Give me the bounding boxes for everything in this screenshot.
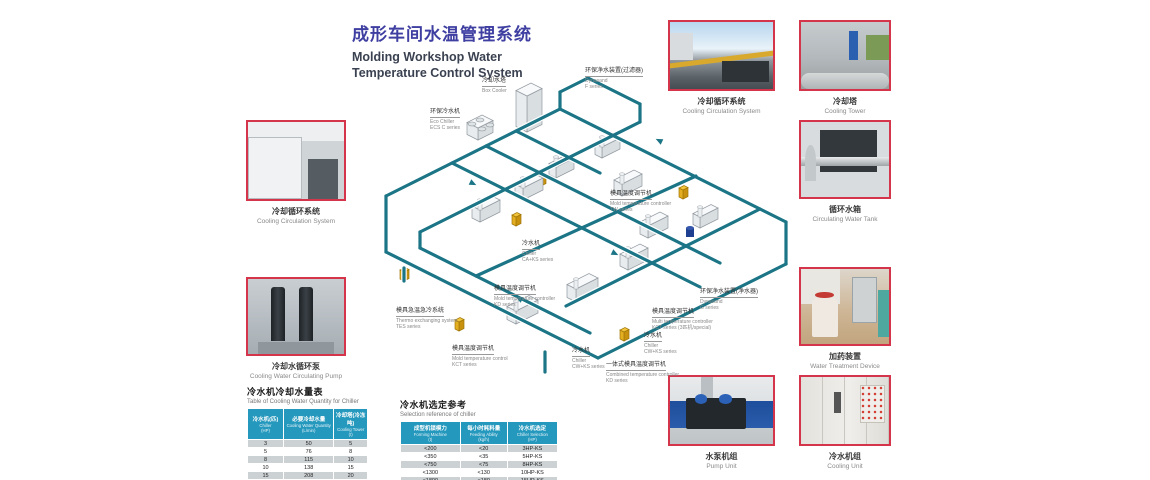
cooling-water-table-block: 冷水机冷却水量表 Table of Cooling Water Quantity… bbox=[247, 385, 368, 480]
table-row: 1520820 bbox=[248, 472, 368, 480]
diagram-label-kct-series: 模具温度调节机 Mold temperature control KCT ser… bbox=[452, 336, 508, 369]
table-cell: 15 bbox=[334, 464, 368, 472]
caption-en: Cooling Circulation System bbox=[246, 218, 346, 225]
caption-zh: 加药装置 bbox=[799, 351, 891, 362]
table-header-row: 冷水机(匹) Chiller (HP) 必要冷却水量 Cooling Water… bbox=[248, 409, 368, 440]
table-cell: 10 bbox=[248, 464, 284, 472]
photo-cooling-unit bbox=[799, 375, 891, 446]
chiller-selection-table: 成型机锁模力 Forming Machine (t) 每小时耗料量 Feedin… bbox=[400, 421, 558, 480]
header-chiller: 冷水机(匹) Chiller (HP) bbox=[248, 409, 284, 440]
diagram-label-ca-ks: 冷水机 Chiller CA+KS series bbox=[522, 231, 553, 264]
caption-en: Cooling Unit bbox=[799, 463, 891, 470]
table-cell: <200 bbox=[401, 445, 461, 453]
diagram-label-kd-series-left: 模具温度调节机 Mold temperature controller KD s… bbox=[494, 276, 555, 309]
table-row: 811510 bbox=[248, 456, 368, 464]
photo-tower-box bbox=[248, 137, 302, 199]
photo-teal-pipe bbox=[878, 290, 889, 337]
caption-pump-unit: 水泵机组 Pump Unit bbox=[668, 451, 775, 470]
table-row: <1300<13010HP-KS bbox=[401, 469, 558, 477]
header-clamping-force: 成型机锁模力 Forming Machine (t) bbox=[401, 422, 461, 445]
caption-circulating-pump: 冷却水循环泵 Cooling Water Circulating Pump bbox=[246, 361, 346, 380]
header-cooling-tower: 冷却塔(冷冻吨) Cooling Tower (t) bbox=[334, 409, 368, 440]
caption-cooling-tower: 冷却塔 Cooling Tower bbox=[799, 96, 891, 115]
photo-pump-cluster bbox=[686, 398, 746, 429]
chiller-selection-table-block: 冷水机选定参考 Selection reference of chiller 成… bbox=[400, 398, 558, 480]
caption-cooling-circulation-left: 冷却循环系统 Cooling Circulation System bbox=[246, 206, 346, 225]
caption-zh: 冷却水循环泵 bbox=[246, 361, 346, 372]
diagram-label-tes-series: 模具急温急冷系统 Thermo exchanging system TES se… bbox=[396, 298, 457, 331]
table-title-en: Table of Cooling Water Quantity for Chil… bbox=[247, 399, 368, 405]
table-cell: 15 bbox=[248, 472, 284, 480]
header-water-quantity: 必要冷却水量 Cooling Water Quantity (L/min) bbox=[284, 409, 334, 440]
table-cell: 208 bbox=[284, 472, 334, 480]
table-header-row: 成型机锁模力 Forming Machine (t) 每小时耗料量 Feedin… bbox=[401, 422, 558, 445]
diagram-label-box-cooler: 冷却水塔 Box Cooler bbox=[482, 68, 507, 94]
diagram-label-cw-ks-center: 冷水机 Chiller CW+KS series bbox=[572, 338, 605, 371]
table-row: 3505 bbox=[248, 440, 368, 448]
table-cell: <35 bbox=[460, 453, 507, 461]
table-cell: 5 bbox=[248, 448, 284, 456]
photo-pump-unit bbox=[668, 375, 775, 446]
table-row: <1800<18015HP-KS bbox=[401, 477, 558, 480]
caption-zh: 循环水箱 bbox=[799, 204, 891, 215]
table-cell: 10HP-KS bbox=[507, 469, 557, 477]
cooling-water-table-body: 3505576881151010138151520820202762530417… bbox=[248, 440, 368, 480]
table-row: 5768 bbox=[248, 448, 368, 456]
photo-cooling-circulation-left bbox=[246, 120, 346, 201]
table-cell: 5HP-KS bbox=[507, 453, 557, 461]
diagram-label-cw-ks-right: 冷水机 Chiller CW+KS series bbox=[644, 323, 677, 356]
caption-en: Water Treatment Device bbox=[799, 363, 891, 370]
header-chiller-selection: 冷水机选定 Chiller Selection (HP) bbox=[507, 422, 557, 445]
table-cell: <1800 bbox=[401, 477, 461, 480]
header-feeding-ability: 每小时耗料量 Feeding Ability (kg/h) bbox=[460, 422, 507, 445]
caption-zh: 冷却循环系统 bbox=[246, 206, 346, 217]
table-cell: 8 bbox=[334, 448, 368, 456]
caption-zh: 冷却塔 bbox=[799, 96, 891, 107]
table-cell: 8HP-KS bbox=[507, 461, 557, 469]
caption-en: Pump Unit bbox=[668, 463, 775, 470]
photo-grass bbox=[866, 35, 889, 59]
table-cell: 138 bbox=[284, 464, 334, 472]
photo-blue-pump bbox=[849, 31, 858, 59]
table-row: <750<758HP-KS bbox=[401, 461, 558, 469]
table-cell: <75 bbox=[460, 461, 507, 469]
table-title-en: Selection reference of chiller bbox=[400, 412, 558, 418]
table-title-zh: 冷水机选定参考 bbox=[400, 398, 558, 411]
photo-cabinet-window bbox=[834, 392, 840, 413]
photo-dark-unit bbox=[308, 159, 339, 199]
photo-control-cabinet bbox=[852, 277, 877, 324]
diagram-label-eco-chiller: 环保冷水机 Eco Chiller ECS C series bbox=[430, 99, 460, 132]
diagram-label-tw-series: 模具温度调节机 Mold temperature controller TW s… bbox=[610, 181, 671, 214]
diagram-label-dynasand-f: 环保净水装置(过滤器) Dynasand F series bbox=[585, 58, 643, 91]
title-chinese: 成形车间水温管理系统 bbox=[352, 20, 582, 45]
photo-cooling-tower bbox=[799, 20, 891, 91]
caption-water-tank: 循环水箱 Circulating Water Tank bbox=[799, 204, 891, 223]
diagram-label-kd-combined: 一体式模具温度调节机 Combined temperature controll… bbox=[606, 352, 679, 385]
photo-large-pipe bbox=[801, 73, 889, 89]
photo-motor-cap-2 bbox=[719, 394, 731, 403]
table-cell: <180 bbox=[460, 477, 507, 480]
chiller-selection-table-body: <200<203HP-KS<350<355HP-KS<750<758HP-KS<… bbox=[401, 445, 558, 480]
photo-dosing-tank bbox=[812, 298, 838, 337]
caption-cooling-unit: 冷水机组 Cooling Unit bbox=[799, 451, 891, 470]
photo-water-tank bbox=[799, 120, 891, 199]
photo-led-panel bbox=[860, 385, 885, 423]
brochure-page: 成形车间水温管理系统 Molding Workshop Water Temper… bbox=[0, 0, 1150, 480]
caption-zh: 冷水机组 bbox=[799, 451, 891, 462]
cooling-water-table: 冷水机(匹) Chiller (HP) 必要冷却水量 Cooling Water… bbox=[247, 408, 368, 480]
photo-circulating-pump bbox=[246, 277, 346, 356]
table-cell: 50 bbox=[284, 440, 334, 448]
table-cell: 115 bbox=[284, 456, 334, 464]
photo-water-treatment bbox=[799, 267, 891, 346]
caption-en: Circulating Water Tank bbox=[799, 216, 891, 223]
table-row: 1013815 bbox=[248, 464, 368, 472]
photo-motor-cap-1 bbox=[695, 394, 707, 403]
table-cell: 76 bbox=[284, 448, 334, 456]
table-title-zh: 冷水机冷却水量表 bbox=[247, 385, 368, 398]
caption-en: Cooling Water Circulating Pump bbox=[246, 373, 346, 380]
photo-pump-2 bbox=[299, 287, 313, 341]
table-cell: 15HP-KS bbox=[507, 477, 557, 480]
table-cell: 3 bbox=[248, 440, 284, 448]
table-cell: 5 bbox=[334, 440, 368, 448]
table-cell: <130 bbox=[460, 469, 507, 477]
photo-pipe-elbow bbox=[805, 145, 816, 181]
table-cell: <750 bbox=[401, 461, 461, 469]
table-row: <200<203HP-KS bbox=[401, 445, 558, 453]
table-cell: 3HP-KS bbox=[507, 445, 557, 453]
photo-pump-1 bbox=[271, 287, 285, 341]
table-cell: <350 bbox=[401, 453, 461, 461]
table-cell: 20 bbox=[334, 472, 368, 480]
photo-pump-base bbox=[258, 342, 335, 354]
table-cell: <1300 bbox=[401, 469, 461, 477]
table-cell: 10 bbox=[334, 456, 368, 464]
table-cell: 8 bbox=[248, 456, 284, 464]
table-row: <350<355HP-KS bbox=[401, 453, 558, 461]
table-cell: <20 bbox=[460, 445, 507, 453]
caption-en: Cooling Tower bbox=[799, 108, 891, 115]
caption-zh: 水泵机组 bbox=[668, 451, 775, 462]
caption-water-treatment: 加药装置 Water Treatment Device bbox=[799, 351, 891, 370]
